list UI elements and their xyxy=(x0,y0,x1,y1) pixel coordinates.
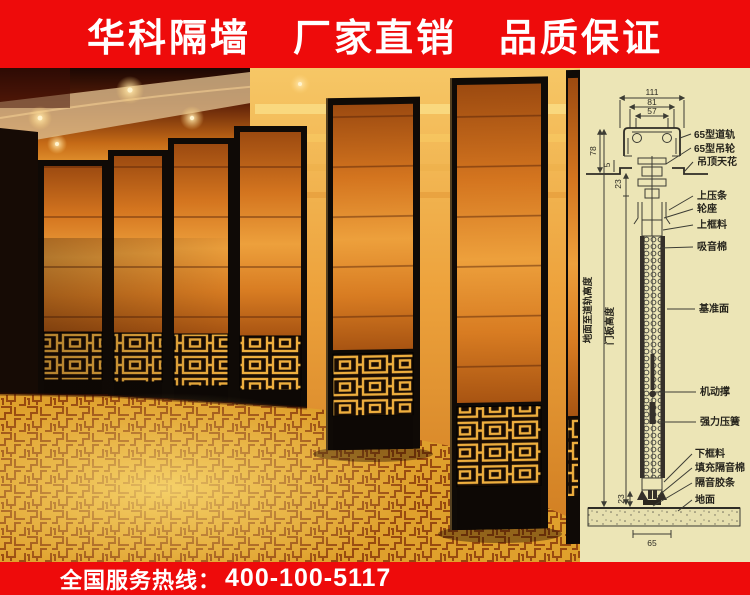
bottom-banner: 全国服务热线： 400-100-5117 xyxy=(0,562,750,595)
part-label-ceiling: 吊顶天花 xyxy=(697,155,737,168)
part-label-track: 65型道轨 xyxy=(694,128,735,141)
label-floor-to-track-height: 地面至道轨高度 xyxy=(582,276,594,343)
dim-78: 78 xyxy=(588,146,598,156)
dim-23-top: 23 xyxy=(613,179,623,189)
part-label-floor: 地面 xyxy=(695,493,715,506)
part-label-top-frame: 上框料 xyxy=(697,218,727,231)
part-label-wheel-seat: 轮座 xyxy=(697,202,717,215)
top-banner-slogan-1: 厂家直销 xyxy=(293,7,457,62)
dimension-bottom: 65 xyxy=(633,530,671,548)
part-label-acoustic-cotton: 吸音棉 xyxy=(697,240,727,253)
showroom-photo xyxy=(0,68,580,562)
track-profile xyxy=(624,128,680,156)
partition-wall-row xyxy=(38,126,307,408)
partition-panel xyxy=(566,70,580,544)
left-dark-wall xyxy=(0,128,38,404)
dim-23-bottom: 23 xyxy=(616,494,626,504)
partition-panel xyxy=(326,97,420,451)
dim-65: 65 xyxy=(647,538,657,548)
dim-111: 111 xyxy=(646,87,659,97)
showroom-photo-svg xyxy=(0,68,580,562)
part-label-top-press-strip: 上压条 xyxy=(697,189,728,202)
top-banner-brand: 华科隔墙 xyxy=(87,7,251,62)
top-banner: 华科隔墙 厂家直销 品质保证 xyxy=(0,0,750,68)
part-label-motor-brace: 机动撑 xyxy=(700,385,730,398)
part-label-bottom-frame: 下框料 xyxy=(695,447,725,460)
dimension-lines-vertical: 78 5 23 23 地面至道轨高度 门板高度 xyxy=(582,130,630,506)
section-diagram: 111 81 57 xyxy=(580,68,750,562)
part-label-seal-strip: 隔音胶条 xyxy=(695,476,736,489)
part-label-spring: 强力压簧 xyxy=(700,415,740,428)
part-label-wheel: 65型吊轮 xyxy=(694,142,735,155)
section-diagram-svg: 111 81 57 xyxy=(580,68,750,562)
part-label-fill-cotton: 填充隔音棉 xyxy=(695,461,745,474)
hotline-label: 全国服务热线： xyxy=(60,563,221,595)
top-banner-slogan-2: 品质保证 xyxy=(499,7,663,62)
floor-slab xyxy=(588,508,740,526)
hotline-number: 400-100-5117 xyxy=(225,564,391,593)
dim-57: 57 xyxy=(647,106,657,116)
partition-panel xyxy=(450,76,548,530)
partition-panel xyxy=(234,126,307,408)
label-panel-height: 门板高度 xyxy=(604,307,616,346)
part-labels: 65型道轨 65型吊轮 吊顶天花 上压条 轮座 上框料 吸音棉 基准面 机动撑 … xyxy=(694,128,745,506)
part-label-datum-plane: 基准面 xyxy=(698,302,729,315)
dimension-lines-top: 111 81 57 xyxy=(620,87,684,128)
main-area: 111 81 57 xyxy=(0,68,750,562)
dim-5: 5 xyxy=(602,162,612,167)
ad-page: 华科隔墙 厂家直销 品质保证 xyxy=(0,0,750,595)
